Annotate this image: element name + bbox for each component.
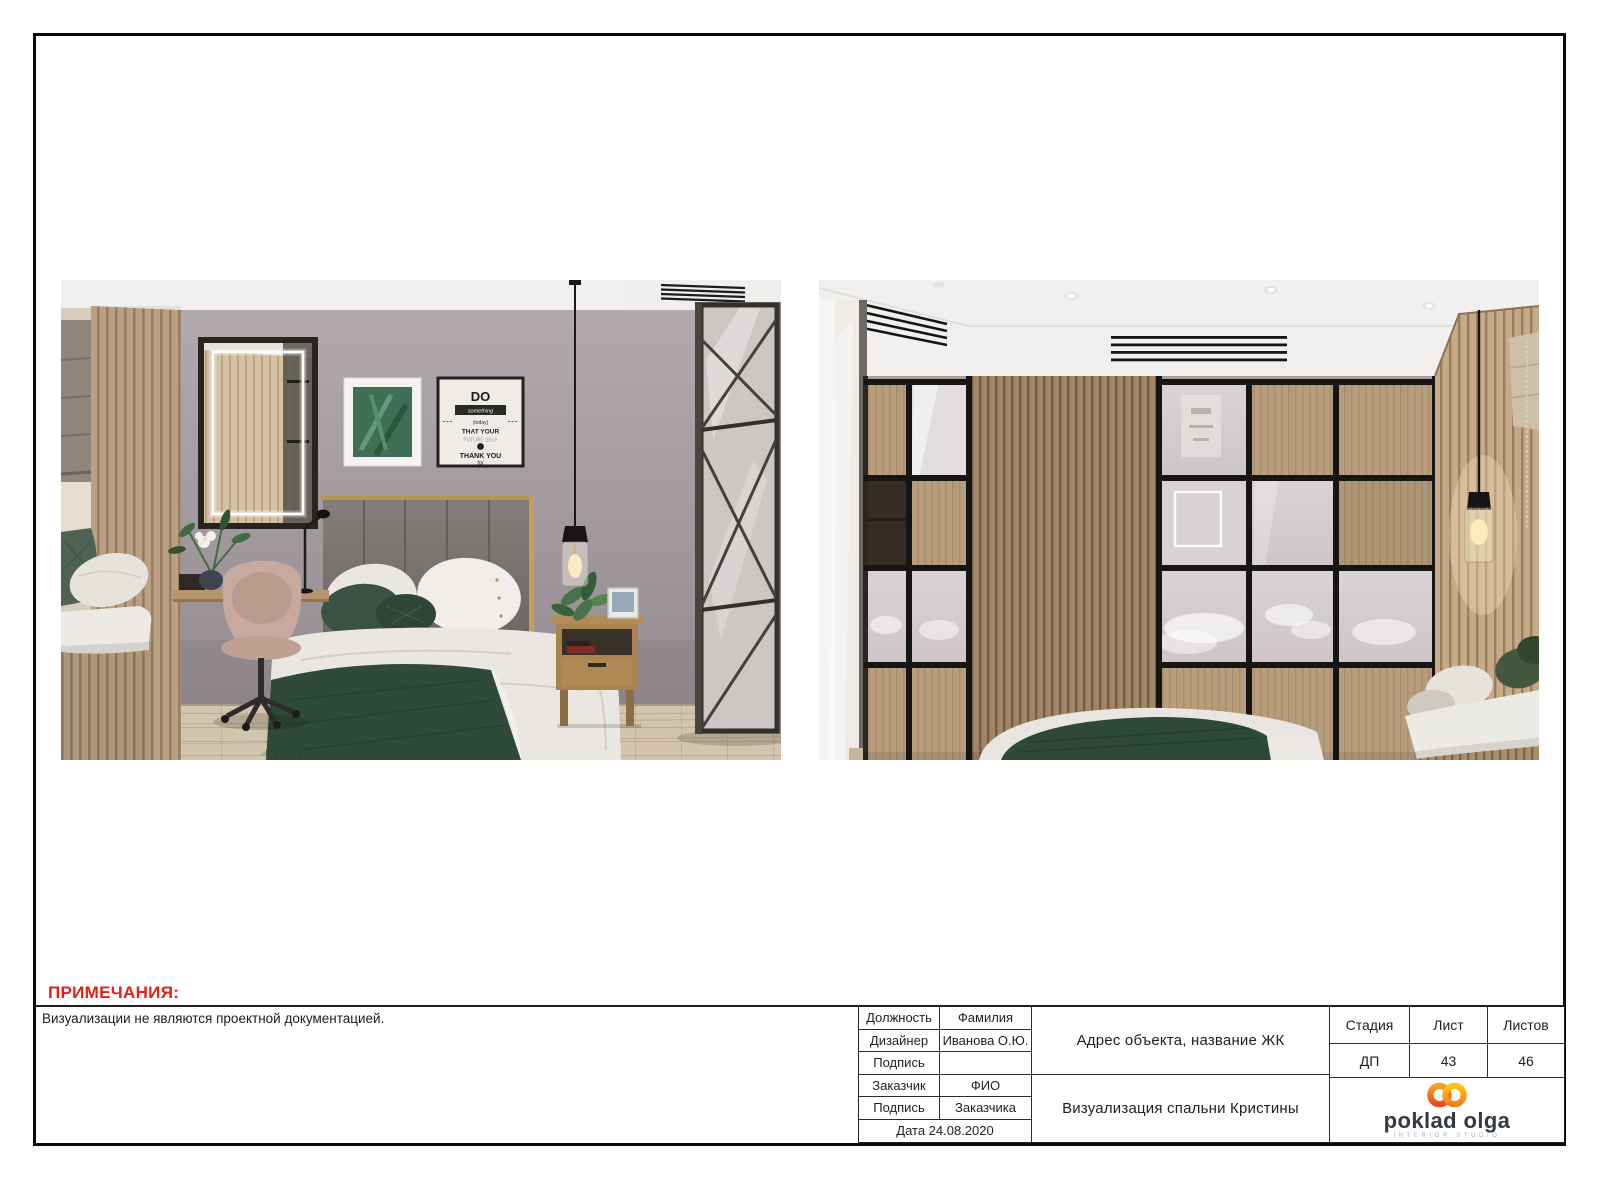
title-block: Должность Фамилия Дизайнер Иванова О.Ю. …: [858, 1006, 1565, 1143]
tb-label-client: Заказчик: [859, 1075, 940, 1098]
bedroom-render-svg: DO something (today) THAT YOUR FUTURE SE…: [61, 280, 781, 760]
poster-word-something: something: [468, 409, 494, 415]
window-seat: [61, 528, 154, 760]
tb-value-sheets-total: 46: [1488, 1044, 1564, 1078]
notes-heading: ПРИМЕЧАНИЯ:: [48, 983, 179, 1003]
tb-object-address: Адрес объекта, название ЖК: [1032, 1007, 1330, 1075]
tb-stage-block: Стадия Лист Листов ДП 43 46: [1330, 1007, 1564, 1142]
logo-subtitle: INTERIOR STUDIO: [1393, 1132, 1500, 1140]
mirror: [198, 337, 318, 529]
tb-header-sheet: Лист: [1410, 1007, 1488, 1044]
tb-sheet-title: Визуализация спальни Кристины: [1032, 1075, 1330, 1143]
render-bedroom-view: DO something (today) THAT YOUR FUTURE SE…: [61, 280, 781, 760]
drawing-sheet: DO something (today) THAT YOUR FUTURE SE…: [0, 0, 1600, 1180]
sliding-door: [819, 300, 867, 760]
poster-word-that-your: THAT YOUR: [462, 429, 500, 436]
poster-word-do: DO: [471, 389, 491, 404]
tb-date: Дата 24.08.2020: [859, 1120, 1032, 1143]
tb-label-signature-2: Подпись: [859, 1097, 940, 1120]
glass-poster-reflection: [1159, 382, 1249, 478]
grid-wardrobe: [863, 376, 1438, 760]
tb-value-sheet: 43: [1410, 1044, 1488, 1078]
wardrobe-render-svg: [819, 280, 1539, 760]
glass-bed-reflection: [1157, 568, 1249, 665]
wall-art-poster: DO something (today) THAT YOUR FUTURE SE…: [438, 378, 523, 467]
tb-value-signature-2: Заказчика: [940, 1097, 1032, 1120]
tb-value-signature-1: [940, 1052, 1032, 1075]
poster-word-today: (today): [473, 420, 489, 426]
tb-value-surname: Фамилия: [940, 1007, 1032, 1030]
render-wardrobe-closeup: [819, 280, 1539, 760]
wall-art-botanical: [344, 378, 421, 466]
glass-led-mirror-reflection: [1159, 478, 1249, 568]
logo-name: poklad olga: [1384, 1110, 1511, 1131]
poster-word-thank-you: THANK YOU: [460, 453, 501, 460]
tb-header-sheets-total: Листов: [1488, 1007, 1564, 1044]
tb-value-stage: ДП: [1330, 1044, 1410, 1078]
tb-header-stage: Стадия: [1330, 1007, 1410, 1044]
tb-label-designer: Дизайнер: [859, 1030, 940, 1053]
notes-text: Визуализации не являются проектной докум…: [42, 1011, 384, 1026]
tb-value-designer-name: Иванова О.Ю.: [940, 1030, 1032, 1053]
photo-frame: [608, 588, 638, 618]
poster-word-future-self: FUTURE SELF: [463, 438, 497, 444]
tb-value-client-name: ФИО: [940, 1075, 1032, 1098]
tb-label-role: Должность: [859, 1007, 940, 1030]
glass-pillow-reflection: [1249, 568, 1336, 665]
logo-rings-icon: [1421, 1080, 1473, 1110]
studio-logo: poklad olga INTERIOR STUDIO: [1330, 1078, 1564, 1142]
tb-label-signature-1: Подпись: [859, 1052, 940, 1075]
